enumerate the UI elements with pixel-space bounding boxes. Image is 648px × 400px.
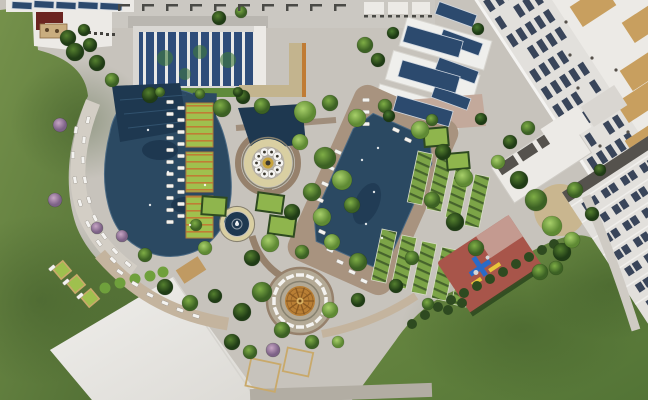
parapet-tick (412, 15, 416, 18)
tree-dark (435, 144, 451, 160)
lounge-chair (167, 136, 174, 140)
tree-dark (233, 87, 243, 97)
window (112, 33, 115, 36)
hedge-shrub (443, 305, 453, 315)
lounge-chair (81, 156, 85, 163)
hedge-shrub (511, 259, 521, 269)
parapet-tick (388, 15, 392, 18)
tree-light (324, 234, 340, 250)
roof-vent (576, 86, 579, 89)
hedge-shrub (472, 281, 482, 291)
parapet-bracket (118, 4, 121, 11)
pergola-bed (186, 103, 213, 147)
lounge-chair (82, 136, 86, 143)
tree-mid (305, 335, 319, 349)
tree-dark (585, 207, 599, 221)
parapet-bracket (214, 4, 217, 11)
small-roof (412, 2, 430, 14)
water-sparkle (381, 237, 383, 239)
radial-bench (296, 325, 304, 329)
tree-dark (89, 55, 105, 71)
solar-panel (78, 1, 98, 9)
plaza-table-center (270, 151, 273, 154)
tree-dark (510, 171, 528, 189)
tree-mid (549, 261, 563, 275)
tree-dark (503, 135, 517, 149)
aerial-site-rendering (0, 0, 648, 400)
tree-light (322, 302, 338, 318)
window (100, 32, 103, 35)
tree-light (455, 169, 473, 187)
tree-mid (532, 264, 548, 280)
tree-mid (155, 87, 165, 97)
hedge-shrub (524, 252, 534, 262)
water-sparkle (361, 159, 363, 161)
lounge-chair (167, 124, 174, 128)
small-roof (388, 2, 408, 14)
plaza-table-center (257, 155, 260, 158)
lounge-chair (167, 112, 174, 116)
lounge-chair (71, 152, 75, 159)
tree-dark (284, 204, 300, 220)
lounge-chair (363, 98, 370, 102)
tree-light (411, 121, 429, 139)
roof-vent (614, 68, 617, 71)
lounge-chair (167, 160, 174, 164)
tree-light (348, 109, 366, 127)
lounge-chair (167, 196, 174, 200)
hedge-shrub (537, 245, 547, 255)
tree-light (332, 170, 352, 190)
tree-dark (224, 334, 240, 350)
atrium-tree (193, 45, 207, 59)
parapet-bracket (286, 4, 289, 11)
tree-dark (371, 53, 385, 67)
atrium-tree (157, 50, 173, 66)
tree-mid (426, 114, 438, 126)
tree-mid (195, 89, 205, 99)
tree-light (198, 241, 212, 255)
tree-mid (525, 189, 547, 211)
water-sparkle (204, 184, 206, 186)
tree-mid (274, 322, 290, 338)
parapet-bracket (142, 4, 145, 11)
parapet-bracket (262, 4, 265, 11)
tree-mid (252, 282, 272, 302)
water-sparkle (377, 147, 379, 149)
hedge-shrub (459, 288, 469, 298)
tree-light (261, 234, 279, 252)
roof-vent (626, 130, 629, 133)
pergola-garden-beds (186, 103, 213, 238)
tree-pink (116, 230, 128, 242)
lounge-chair (178, 106, 185, 110)
tree-mid (567, 182, 583, 198)
tree-mid (213, 99, 231, 117)
tree-mid (424, 192, 440, 208)
parapet-tick (428, 15, 432, 18)
tree-mid (303, 183, 321, 201)
tree-dark (594, 164, 606, 176)
parapet-bracket (238, 4, 241, 11)
bush (100, 283, 111, 294)
solar-panel (12, 1, 32, 9)
lounge-chair (178, 166, 185, 170)
hedge-shrub (457, 298, 467, 308)
tree-palm (383, 110, 395, 122)
lounge-chair (178, 154, 185, 158)
parapet-bracket (190, 4, 193, 11)
water-sparkle (236, 221, 238, 223)
tree-dark (83, 38, 97, 52)
tree-dark (212, 11, 226, 25)
tree-palm (475, 113, 487, 125)
water-sparkle (149, 204, 151, 206)
lounge-chair (178, 178, 185, 182)
lounge-chair (167, 220, 174, 224)
tree-mid (295, 245, 309, 259)
roof-vent (568, 53, 571, 56)
tree-light (294, 101, 316, 123)
tree-pink (91, 222, 103, 234)
tree-light (491, 155, 505, 169)
parapet-bracket (310, 4, 313, 11)
tree-dark (351, 293, 365, 307)
parapet-tick (396, 15, 400, 18)
pergola-bed (186, 152, 213, 192)
plaza-center-dot (266, 161, 271, 166)
tree-dark (157, 279, 173, 295)
plaza-table-center (276, 168, 279, 171)
tree-light (332, 336, 344, 348)
bush (115, 278, 126, 289)
tree-dark (244, 250, 260, 266)
window (106, 33, 109, 36)
tree-light (313, 208, 331, 226)
lounge-chair (167, 100, 174, 104)
tree-pink (53, 118, 67, 132)
atrium-tree (220, 52, 236, 68)
tree-mid (405, 251, 419, 265)
lounge-chair (178, 214, 185, 218)
tree-mid (254, 98, 270, 114)
tree-mid (357, 37, 373, 53)
tree-mid (422, 298, 434, 310)
l-pergola-accent (302, 43, 306, 97)
lounge-chair (178, 202, 185, 206)
tree-mid (344, 197, 360, 213)
tree-dark (389, 279, 403, 293)
lounge-chair (178, 142, 185, 146)
plaza-table-center (263, 173, 266, 176)
tree-mid (243, 345, 257, 359)
water-sparkle (373, 191, 375, 193)
plaza-table-center (263, 151, 266, 154)
garden-bed (201, 196, 226, 216)
tree-mid (235, 6, 247, 18)
tree-pink (48, 193, 62, 207)
tree-pink (266, 343, 280, 357)
hedge-shrub (498, 267, 508, 277)
hedge-shrub (485, 274, 495, 284)
water-sparkle (147, 129, 149, 131)
water-sparkle (365, 223, 367, 225)
parapet-tick (380, 15, 384, 18)
tree-mid (468, 240, 484, 256)
lounge-chair (178, 190, 185, 194)
plaza-table-center (270, 173, 273, 176)
atrium-side-roof (254, 26, 266, 90)
tree-dark (208, 289, 222, 303)
tree-mid (105, 73, 119, 87)
tree-mid (190, 219, 202, 231)
garden-bed (256, 192, 284, 213)
water-sparkle (167, 171, 169, 173)
plaza-table-center (278, 162, 281, 165)
tree-dark (233, 303, 251, 321)
tree-mid (322, 95, 338, 111)
roof-vent (590, 56, 593, 59)
lounge-chair (167, 148, 174, 152)
tree-palm (472, 23, 484, 35)
plaza-table-center (255, 162, 258, 165)
lounge-chair (178, 118, 185, 122)
solar-panel (56, 1, 76, 9)
plaza-table-center (276, 155, 279, 158)
grill-spot (45, 28, 49, 32)
roof-vent (564, 20, 567, 23)
tree-mid (314, 147, 336, 169)
hedge-shrub (420, 310, 430, 320)
tree-dark (446, 213, 464, 231)
bush (145, 271, 156, 282)
tree-mid (521, 121, 535, 135)
radial-bench (272, 297, 276, 305)
tree-palm (387, 27, 399, 39)
tree-mid (182, 295, 198, 311)
hedge-shrub (446, 295, 456, 305)
water-sparkle (189, 224, 191, 226)
parapet-tick (364, 15, 368, 18)
tree-light (542, 216, 562, 236)
hedge-shrub (407, 319, 417, 329)
solar-panel (34, 0, 54, 8)
parapet-tick (372, 15, 376, 18)
radial-bench (296, 273, 304, 277)
tree-mid (349, 253, 367, 271)
parapet-bracket (166, 4, 169, 11)
atrium-tree (179, 68, 191, 80)
bush (158, 267, 169, 278)
atrium-glass-roof (139, 32, 255, 86)
tree-dark (66, 43, 84, 61)
tree-dark (78, 24, 90, 36)
hedge-shrub (433, 302, 443, 312)
lounge-chair (167, 184, 174, 188)
roof-vent (598, 144, 601, 147)
plaza-table-center (257, 168, 260, 171)
lounge-chair (74, 126, 79, 133)
parapet-tick (420, 15, 424, 18)
grill-spot (55, 29, 59, 33)
tree-mid (138, 248, 152, 262)
parapet-bracket (334, 4, 337, 11)
tree-light (564, 232, 580, 248)
lounge-chair (178, 130, 185, 134)
window (94, 32, 97, 35)
red-roof (36, 11, 63, 23)
small-roof (364, 2, 384, 14)
lounge-chair (167, 208, 174, 212)
tree-light (292, 134, 308, 150)
parapet-tick (404, 15, 408, 18)
